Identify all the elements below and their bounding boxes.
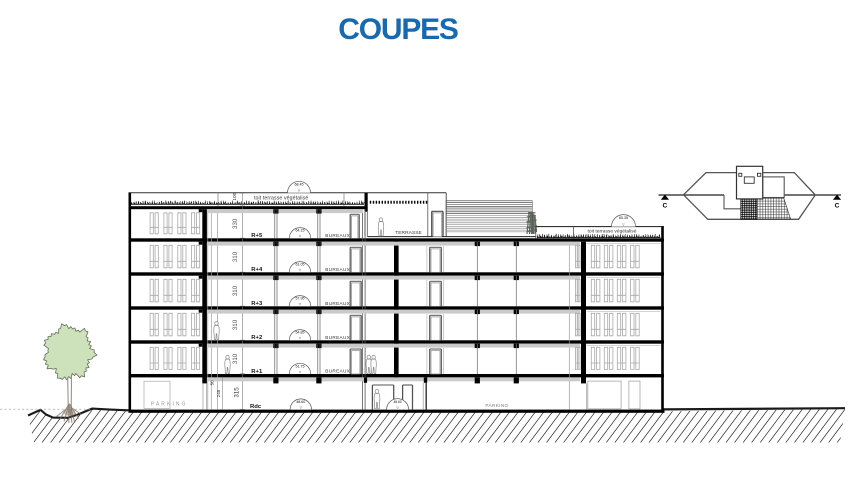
- svg-text:BUREAUX: BUREAUX: [325, 233, 350, 238]
- svg-text:PARKING: PARKING: [151, 402, 188, 408]
- svg-text:310: 310: [232, 353, 239, 364]
- svg-text:315: 315: [234, 387, 241, 398]
- svg-text:54.85: 54.85: [296, 331, 305, 335]
- svg-text:61.05: 61.05: [296, 263, 305, 267]
- svg-text:BUREAUX: BUREAUX: [325, 369, 350, 374]
- svg-text:TERRASSE: TERRASSE: [395, 230, 422, 236]
- svg-text:310: 310: [232, 285, 239, 296]
- svg-text:310: 310: [232, 319, 239, 330]
- svg-text:50: 50: [209, 380, 214, 385]
- svg-text:Rdc: Rdc: [250, 404, 262, 410]
- svg-text:R+2: R+2: [251, 335, 263, 341]
- svg-text:PARKING: PARKING: [485, 403, 508, 408]
- svg-text:C: C: [663, 203, 668, 210]
- svg-text:R+1: R+1: [251, 369, 263, 375]
- svg-text:310: 310: [232, 251, 239, 262]
- svg-text:65.35: 65.35: [619, 216, 628, 220]
- svg-text:R+4: R+4: [251, 267, 263, 273]
- svg-text:68.45: 68.45: [295, 183, 304, 187]
- svg-text:245: 245: [216, 389, 221, 397]
- svg-text:100: 100: [232, 192, 238, 200]
- svg-text:BUREAUX: BUREAUX: [325, 267, 350, 272]
- svg-text:R+3: R+3: [251, 301, 263, 307]
- svg-text:toit terrasse végétalisé: toit terrasse végétalisé: [588, 229, 637, 235]
- svg-text:51.75: 51.75: [296, 364, 305, 368]
- svg-text:R+5: R+5: [251, 233, 263, 239]
- svg-text:57.95: 57.95: [296, 297, 305, 301]
- svg-text:BUREAUX: BUREAUX: [325, 301, 350, 306]
- svg-text:48.60: 48.60: [393, 400, 401, 404]
- svg-text:64.15: 64.15: [296, 229, 305, 233]
- svg-text:C: C: [835, 203, 840, 210]
- svg-text:48.60: 48.60: [296, 400, 305, 404]
- svg-text:330: 330: [232, 218, 239, 229]
- svg-text:COUPES: COUPES: [338, 13, 458, 46]
- svg-text:BUREAUX: BUREAUX: [325, 335, 350, 340]
- svg-text:toit terrasse végétalisé: toit terrasse végétalisé: [254, 196, 308, 202]
